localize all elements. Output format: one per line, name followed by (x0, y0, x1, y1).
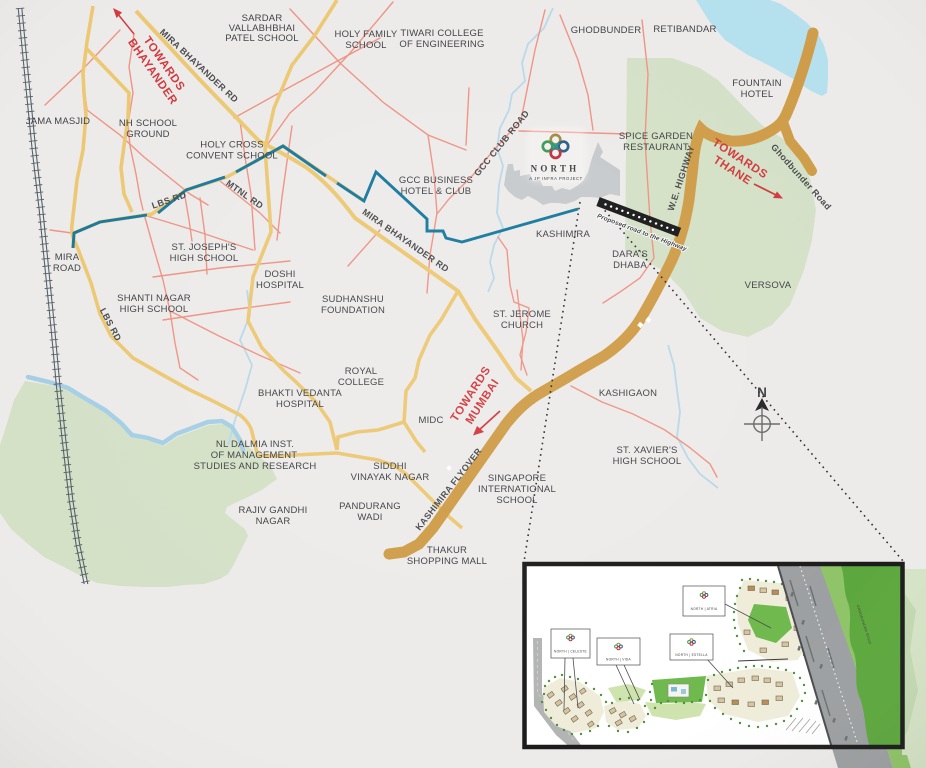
svg-text:PATEL SCHOOL: PATEL SCHOOL (225, 33, 299, 44)
svg-text:NH SCHOOL: NH SCHOOL (119, 118, 177, 129)
svg-text:HOLY CROSS: HOLY CROSS (200, 140, 263, 151)
svg-text:RAJIV GANDHI: RAJIV GANDHI (239, 505, 308, 516)
svg-text:SIDDHI: SIDDHI (373, 461, 406, 472)
svg-text:HIGH SCHOOL: HIGH SCHOOL (170, 253, 239, 264)
svg-text:NORTH: NORTH (531, 164, 580, 174)
svg-text:INTERNATIONAL: INTERNATIONAL (478, 484, 556, 495)
svg-text:KASHIGAON: KASHIGAON (599, 388, 657, 399)
svg-text:NL DALMIA INST.: NL DALMIA INST. (216, 439, 294, 450)
svg-text:N: N (757, 385, 767, 400)
svg-text:WADI: WADI (357, 512, 382, 523)
svg-text:CHURCH: CHURCH (501, 320, 543, 331)
svg-text:BHAKTI VEDANTA: BHAKTI VEDANTA (258, 388, 342, 399)
svg-text:SCHOOL: SCHOOL (345, 40, 386, 51)
svg-text:PANDURANG: PANDURANG (339, 501, 401, 512)
svg-text:ST. JOSEPH'S: ST. JOSEPH'S (172, 242, 237, 253)
svg-text:VINAYAK NAGAR: VINAYAK NAGAR (351, 472, 430, 483)
svg-text:DARA'S: DARA'S (612, 249, 648, 260)
svg-text:HOSPITAL: HOSPITAL (276, 399, 324, 410)
svg-text:NORTH | CELESTE: NORTH | CELESTE (554, 650, 587, 654)
svg-text:SCHOOL: SCHOOL (496, 495, 537, 506)
svg-text:HOTEL & CLUB: HOTEL & CLUB (401, 186, 472, 197)
svg-text:SPICE GARDEN: SPICE GARDEN (619, 131, 693, 142)
svg-text:HOLY FAMILY: HOLY FAMILY (335, 29, 398, 40)
svg-text:GHODBUNDER: GHODBUNDER (571, 25, 642, 36)
svg-text:CONVENT SCHOOL: CONVENT SCHOOL (186, 151, 278, 162)
svg-text:JAMA MASJID: JAMA MASJID (26, 116, 91, 127)
svg-text:OF MANAGEMENT: OF MANAGEMENT (211, 450, 298, 461)
svg-text:NORTH | ESTELLA: NORTH | ESTELLA (675, 653, 708, 657)
svg-text:MIRA: MIRA (55, 252, 80, 263)
svg-text:NORTH | ATRIA: NORTH | ATRIA (691, 607, 718, 611)
svg-text:SHANTI NAGAR: SHANTI NAGAR (117, 293, 191, 304)
svg-text:THAKUR: THAKUR (427, 545, 467, 556)
svg-text:RETIBANDAR: RETIBANDAR (653, 24, 716, 35)
svg-text:ROYAL: ROYAL (345, 366, 378, 377)
svg-text:COLLEGE: COLLEGE (338, 377, 384, 388)
svg-text:ST. XAVIER'S: ST. XAVIER'S (616, 445, 677, 456)
svg-text:SHOPPING MALL: SHOPPING MALL (407, 556, 487, 567)
svg-text:ST. JEROME: ST. JEROME (493, 309, 551, 320)
svg-text:DOSHI: DOSHI (264, 269, 295, 280)
svg-text:HIGH SCHOOL: HIGH SCHOOL (120, 304, 189, 315)
svg-text:DHABA: DHABA (613, 260, 647, 271)
svg-text:A JP INFRA PROJECT: A JP INFRA PROJECT (529, 176, 583, 181)
svg-text:GROUND: GROUND (126, 129, 169, 140)
svg-text:HOTEL: HOTEL (741, 89, 774, 100)
svg-text:OF ENGINEERING: OF ENGINEERING (399, 39, 484, 50)
svg-text:RESTAURANT: RESTAURANT (623, 142, 689, 153)
svg-text:MIDC: MIDC (418, 415, 443, 426)
svg-text:FOUNTAIN: FOUNTAIN (732, 78, 781, 89)
svg-text:TIWARI COLLEGE: TIWARI COLLEGE (400, 28, 483, 39)
svg-text:GCC BUSINESS: GCC BUSINESS (399, 175, 473, 186)
svg-text:VERSOVA: VERSOVA (745, 280, 792, 291)
svg-text:ROAD: ROAD (53, 263, 81, 274)
svg-text:SINGAPORE: SINGAPORE (488, 473, 546, 484)
svg-text:FOUNDATION: FOUNDATION (321, 305, 385, 316)
svg-text:SUDHANSHU: SUDHANSHU (322, 294, 384, 305)
svg-text:KASHIMIRA: KASHIMIRA (536, 229, 591, 240)
svg-text:NAGAR: NAGAR (256, 516, 291, 527)
svg-text:HOSPITAL: HOSPITAL (256, 280, 304, 291)
svg-text:NORTH | VIDA: NORTH | VIDA (606, 658, 631, 662)
svg-text:STUDIES AND RESEARCH: STUDIES AND RESEARCH (194, 461, 317, 472)
svg-text:HIGH SCHOOL: HIGH SCHOOL (613, 456, 682, 467)
